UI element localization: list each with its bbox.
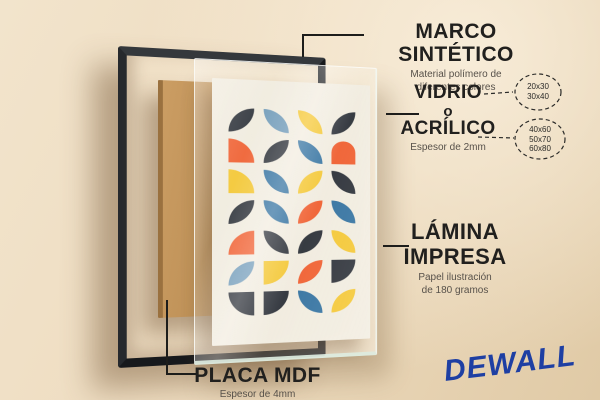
size-30x40: 30x40 [514,92,562,102]
lamina-subtitle-line2: de 180 gramos [380,285,530,298]
marco-subtitle-line1: Material polímero de [356,69,556,82]
lamina-title-line1: LÁMINA [380,219,530,244]
label-lamina-impresa: LÁMINA IMPRESA Papel ilustración de 180 … [380,219,530,297]
lamina-subtitle-line1: Papel ilustración [380,272,530,285]
vidrio-title: VIDRIO [380,83,516,104]
acrilico-title: ACRÍLICO [380,119,516,140]
large-sizes-badge: 40x60 50x70 60x80 [515,125,565,154]
placa-title: PLACA MDF [185,365,330,388]
infographic-canvas: MARCO SINTÉTICO Material polímero de dif… [0,0,600,400]
placa-subtitle: Espesor de 4mm [185,389,330,400]
placa-connector-line [167,300,197,374]
label-vidrio-acrilico: VIDRIO o ACRÍLICO Espesor de 2mm [380,83,516,155]
vidrio-o-text: o [380,104,516,119]
marco-title: MARCO SINTÉTICO [356,21,556,66]
lamina-title-line2: IMPRESA [380,244,530,269]
size-20x30: 20x30 [514,82,562,92]
size-50x70: 50x70 [515,135,565,145]
marco-connector-line [303,35,364,57]
size-60x80: 60x80 [515,144,565,154]
size-40x60: 40x60 [515,125,565,135]
vidrio-subtitle: Espesor de 2mm [380,142,516,155]
small-sizes-badge: 20x30 30x40 [514,82,562,101]
label-placa-mdf: PLACA MDF Espesor de 4mm [185,365,330,400]
